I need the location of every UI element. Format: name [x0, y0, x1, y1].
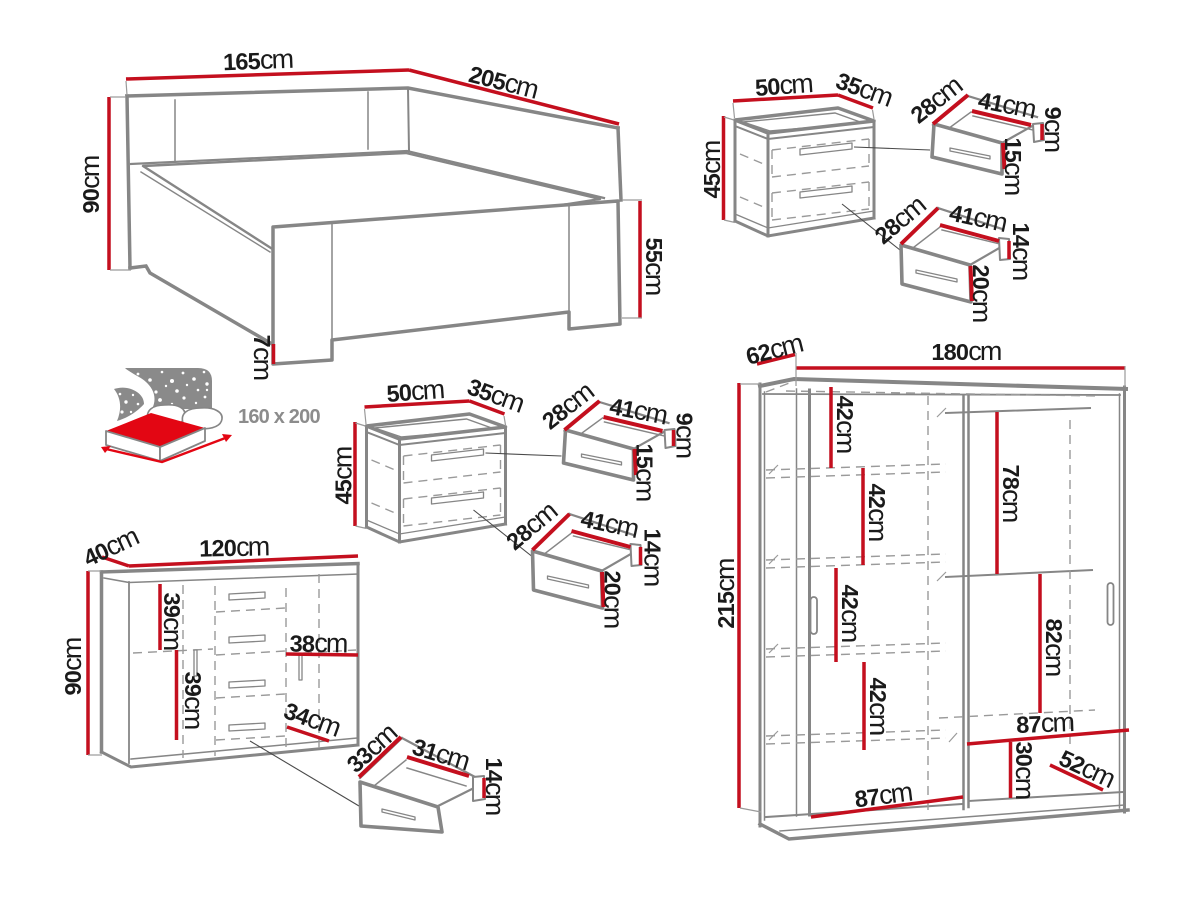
svg-text:160 x 200: 160 x 200 — [238, 406, 320, 428]
svg-text:90cm: 90cm — [75, 156, 105, 213]
svg-text:14cm: 14cm — [1007, 223, 1037, 280]
svg-text:215cm: 215cm — [710, 559, 740, 629]
svg-text:42cm: 42cm — [863, 484, 893, 541]
svg-text:14cm: 14cm — [480, 758, 510, 815]
svg-text:7cm: 7cm — [248, 335, 278, 380]
svg-text:120cm: 120cm — [199, 531, 269, 562]
svg-text:42cm: 42cm — [831, 396, 861, 453]
svg-text:180cm: 180cm — [931, 336, 1001, 366]
svg-text:45cm: 45cm — [696, 141, 726, 198]
svg-text:38cm: 38cm — [289, 628, 347, 659]
svg-text:165cm: 165cm — [223, 44, 294, 76]
svg-text:30cm: 30cm — [1010, 742, 1040, 799]
svg-text:87cm: 87cm — [1016, 707, 1074, 739]
svg-text:55cm: 55cm — [640, 238, 670, 295]
svg-text:15cm: 15cm — [999, 138, 1029, 195]
svg-text:39cm: 39cm — [158, 593, 188, 650]
svg-text:42cm: 42cm — [836, 585, 866, 642]
svg-text:82cm: 82cm — [1040, 619, 1070, 676]
svg-text:78cm: 78cm — [997, 465, 1027, 522]
svg-text:9cm: 9cm — [1039, 107, 1069, 152]
svg-text:90cm: 90cm — [57, 638, 87, 695]
svg-text:39cm: 39cm — [179, 672, 209, 729]
svg-text:20cm: 20cm — [967, 265, 997, 322]
svg-text:42cm: 42cm — [864, 678, 894, 735]
